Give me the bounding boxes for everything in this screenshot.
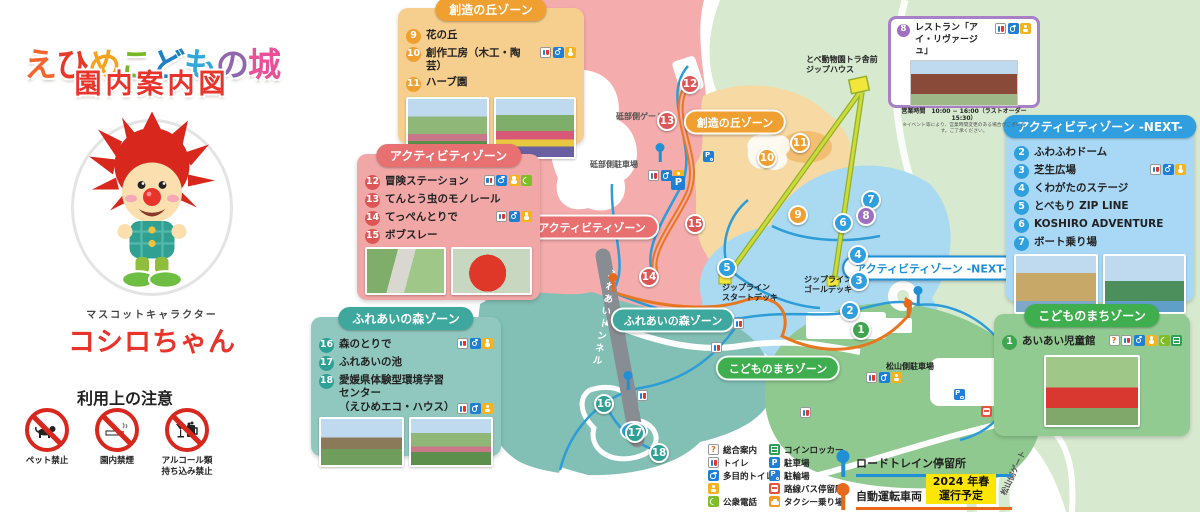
- map-marker-9: 9: [788, 205, 808, 225]
- road-train-stop-pin: [623, 371, 633, 390]
- wheelchair-icon: [1134, 335, 1145, 346]
- baby-icon: [1020, 23, 1031, 34]
- parking-icon: [769, 457, 780, 468]
- item-number: 8: [897, 24, 910, 37]
- mascot-name: コシロちゃん: [10, 320, 294, 359]
- item-label: 創作工房（木工・陶芸）: [426, 47, 535, 74]
- baby-icon: [1146, 335, 1157, 346]
- zone-title: 創造の丘ゾーン: [435, 0, 546, 21]
- label-tobe-parking: 砥部側駐車場: [590, 160, 638, 170]
- toilet-icon: [800, 407, 811, 418]
- information-icon: [1109, 335, 1120, 346]
- item-number: 18: [319, 374, 334, 389]
- toilet-icon: [1121, 335, 1132, 346]
- item-number: 9: [406, 29, 421, 44]
- toilet-icon: [484, 175, 495, 186]
- zone-title: アクティビティゾーン -NEXT-: [1003, 115, 1196, 138]
- notice-label: ペット禁止: [14, 456, 80, 467]
- map-pill-activity: アクティビティゾーン: [525, 215, 659, 240]
- baby-icon: [521, 211, 532, 222]
- item-label: くわがたのステージ: [1034, 182, 1128, 196]
- zone-title: ふれあいの森ゾーン: [338, 307, 473, 330]
- legend-label: 駐輪場: [784, 470, 810, 482]
- auto-vehicle-stop-pin: [903, 299, 913, 318]
- item-number: 12: [365, 175, 380, 190]
- wheelchair-icon: [879, 372, 890, 383]
- item-number: 10: [406, 47, 421, 62]
- item-label: ハーブ園: [426, 76, 467, 90]
- toilet-icon: [1150, 164, 1161, 175]
- service-start-badge: 2024 年春 運行予定: [926, 474, 996, 504]
- mascot-illustration: [62, 108, 242, 304]
- notice-no-alcohol: アルコール類 持ち込み禁止: [154, 408, 220, 477]
- zone-photo: [1044, 355, 1140, 427]
- toilet-icon: [637, 390, 648, 401]
- baby-icon: [1175, 164, 1186, 175]
- item-number: 11: [406, 77, 421, 92]
- map-marker-2: 2: [840, 301, 860, 321]
- wheelchair-icon: [708, 470, 719, 481]
- legend-label: 多目的トイレ: [723, 470, 774, 482]
- legend-label: 公衆電話: [723, 496, 757, 508]
- item-label: KOSHIRO ADVENTURE: [1034, 218, 1163, 232]
- auto-vehicle-stop-pin: [836, 483, 850, 510]
- item-label: とべもり ZIP LINE: [1034, 200, 1129, 214]
- no-pets-icon: [25, 408, 69, 452]
- baby-icon: [565, 47, 576, 58]
- zone-title: こどものまちゾーン: [1024, 304, 1159, 327]
- label-zip-house: とべ動物園トラ舎前 ジップハウス: [806, 55, 878, 76]
- wheelchair-icon: [470, 338, 481, 349]
- item-number: 1: [1002, 335, 1017, 350]
- map-pill-souzou: 創造の丘ゾーン: [684, 110, 786, 135]
- locker-icon: [769, 444, 780, 455]
- wheelchair-icon: [496, 175, 507, 186]
- map-marker-8: 8: [856, 206, 876, 226]
- item-label: てんとう虫のモノレール: [385, 193, 501, 207]
- item-number: 14: [365, 211, 380, 226]
- item-number: 4: [1014, 182, 1029, 197]
- map-marker-3: 3: [849, 271, 869, 291]
- wheelchair-icon: [1163, 164, 1174, 175]
- label-matsuyama-parking: 松山側駐車場: [886, 362, 934, 372]
- item-label: 冒険ステーション: [385, 175, 469, 189]
- legend-label: 駐車場: [784, 457, 810, 469]
- zone-photo: [409, 417, 494, 467]
- toilet-icon: [457, 403, 468, 414]
- legend-label: タクシー乗り場: [784, 496, 844, 508]
- restaurant-hours: 営業時間 10:00 − 16:00（ラストオーダー 15:30）: [897, 108, 1031, 122]
- map-marker-1: 1: [851, 320, 871, 340]
- item-number: 3: [1014, 164, 1029, 179]
- phone-icon: [708, 496, 719, 507]
- item-number: 7: [1014, 236, 1029, 251]
- restaurant-note: ※イベント等により、営業時間変更のある場合がございます。ご了承ください。: [900, 123, 1027, 134]
- auto-vehicle-stop-pin: [608, 273, 618, 292]
- baby-icon: [482, 403, 493, 414]
- item-number: 13: [365, 193, 380, 208]
- legend-box-activity: アクティビティゾーン 12冒険ステーション 13てんとう虫のモノレール 14てっ…: [357, 154, 540, 300]
- wheelchair-icon: [470, 403, 481, 414]
- park-guide-map: 創造の丘ゾーン アクティビティゾーン ふれあいの森ゾーン こどものまちゾーン ア…: [0, 0, 1200, 512]
- map-marker-5: 5: [717, 258, 737, 278]
- legend-box-souzou: 創造の丘ゾーン 9花の丘 10創作工房（木工・陶芸） 11ハーブ園: [398, 8, 584, 144]
- item-number: 2: [1014, 146, 1029, 161]
- legend-facilities-col1: 総合案内 トイレ 多目的トイレ 公衆電話: [708, 444, 774, 508]
- map-marker-6: 6: [833, 213, 853, 233]
- label-zip-start: ジップライン スタートデッキ: [722, 283, 778, 304]
- baby-icon: [482, 338, 493, 349]
- item-label: ボート乗り場: [1034, 236, 1097, 250]
- bicycle-parking-icon: [703, 151, 714, 162]
- locker-icon: [1171, 335, 1182, 346]
- item-label: 芝生広場: [1034, 164, 1076, 178]
- notice-label: アルコール類 持ち込み禁止: [154, 456, 220, 477]
- legend-label: 総合案内: [723, 444, 757, 456]
- map-marker-13: 13: [657, 111, 677, 131]
- map-marker-11: 11: [790, 133, 810, 153]
- legend-facilities-col2: コインロッカー 駐車場 駐輪場 路線バス停留所 タクシー乗り場: [769, 444, 844, 508]
- map-marker-4: 4: [848, 245, 868, 265]
- baby-icon: [708, 483, 719, 494]
- zone-photo: [365, 247, 446, 295]
- wheelchair-icon: [553, 47, 564, 58]
- bicycle-parking-icon: [769, 470, 780, 481]
- toilet-icon: [733, 318, 744, 329]
- item-label: てっぺんとりで: [385, 211, 458, 225]
- notice-no-pets: ペット禁止: [14, 408, 80, 467]
- map-marker-16: 16: [594, 394, 614, 414]
- wheelchair-icon: [1008, 23, 1019, 34]
- wheelchair-icon: [661, 170, 672, 181]
- toilet-icon: [457, 338, 468, 349]
- item-label: 森のとりで: [339, 338, 392, 352]
- map-marker-14: 14: [639, 267, 659, 287]
- phone-icon: [521, 175, 532, 186]
- notice-no-smoking: 園内禁煙: [84, 408, 150, 467]
- legend-label: トイレ: [723, 457, 749, 469]
- item-label: レストラン「アイ・リヴァージュ」: [915, 23, 990, 58]
- legend-box-restaurant: 8レストラン「アイ・リヴァージュ」 営業時間 10:00 − 16:00（ラスト…: [888, 16, 1040, 108]
- information-icon: [708, 444, 719, 455]
- item-number: 6: [1014, 218, 1029, 233]
- toilet-icon: [540, 47, 551, 58]
- legend-road-train-stop: ロードトレイン停留所: [836, 450, 1012, 477]
- zone-title: アクティビティゾーン: [376, 144, 521, 167]
- restaurant-photo: [910, 60, 1018, 106]
- bus-stop-icon: [769, 483, 780, 494]
- baby-icon: [509, 175, 520, 186]
- road-train-stop-pin: [836, 450, 850, 477]
- map-marker-10: 10: [757, 148, 777, 168]
- map-marker-15: 15: [685, 214, 705, 234]
- baby-icon: [891, 372, 902, 383]
- phone-icon: [1159, 335, 1170, 346]
- taxi-stand-icon: [769, 496, 780, 507]
- notice-label: 園内禁煙: [84, 456, 150, 467]
- road-train-stop-pin: [655, 143, 665, 162]
- item-number: 15: [365, 229, 380, 244]
- bicycle-parking-icon: [954, 389, 965, 400]
- no-smoking-icon: [95, 408, 139, 452]
- toilet-icon: [708, 457, 719, 468]
- toilet-icon: [711, 342, 722, 353]
- parking-icon: [671, 176, 685, 190]
- notices-heading: 利用上の注意: [10, 385, 240, 409]
- legend-label: コインロッカー: [784, 444, 844, 456]
- map-marker-18: 18: [649, 443, 669, 463]
- mascot-caption: マスコットキャラクター: [10, 306, 294, 321]
- zone-photo: [451, 247, 532, 295]
- item-label: 愛媛県体験型環境学習センター （えひめエコ・ハウス）: [339, 374, 452, 415]
- map-pill-fureai: ふれあいの森ゾーン: [611, 308, 735, 333]
- wheelchair-icon: [509, 211, 520, 222]
- map-marker-12: 12: [680, 74, 700, 94]
- map-facility-cluster: [866, 372, 902, 383]
- item-label: ふわふわドーム: [1034, 146, 1107, 160]
- item-label: ふれあいの池: [339, 356, 402, 370]
- page-title: 園内案内図: [6, 62, 298, 101]
- toilet-icon: [995, 23, 1006, 34]
- label-zip-goal: ジップライン ゴールデッキ: [804, 275, 852, 296]
- zone-photo: [319, 417, 404, 467]
- item-label: 花の丘: [426, 29, 458, 43]
- legend-box-fureai: ふれあいの森ゾーン 16森のとりで 17ふれあいの池 18愛媛県体験型環境学習セ…: [311, 317, 501, 456]
- legend-box-machi: こどものまちゾーン 1あいあい児童館: [994, 314, 1190, 436]
- item-label: あいあい児童館: [1022, 335, 1096, 349]
- no-alcohol-icon: [165, 408, 209, 452]
- legend-label: 路線バス停留所: [784, 483, 844, 495]
- toilet-icon: [648, 170, 659, 181]
- road-train-stop-pin: [913, 286, 923, 305]
- item-label: ボブスレー: [385, 229, 438, 243]
- item-number: 16: [319, 338, 334, 353]
- map-marker-17: 17: [625, 423, 645, 443]
- bus-stop-icon: [981, 406, 992, 417]
- toilet-icon: [866, 372, 877, 383]
- map-pill-machi: こどものまちゾーン: [716, 356, 840, 381]
- legend-box-next: アクティビティゾーン -NEXT- 2ふわふわドーム 3芝生広場 4くわがたのス…: [1006, 125, 1194, 302]
- item-number: 17: [319, 356, 334, 371]
- toilet-icon: [496, 211, 507, 222]
- item-number: 5: [1014, 200, 1029, 215]
- map-pill-next: アクティビティゾーン -NEXT-: [842, 256, 1020, 281]
